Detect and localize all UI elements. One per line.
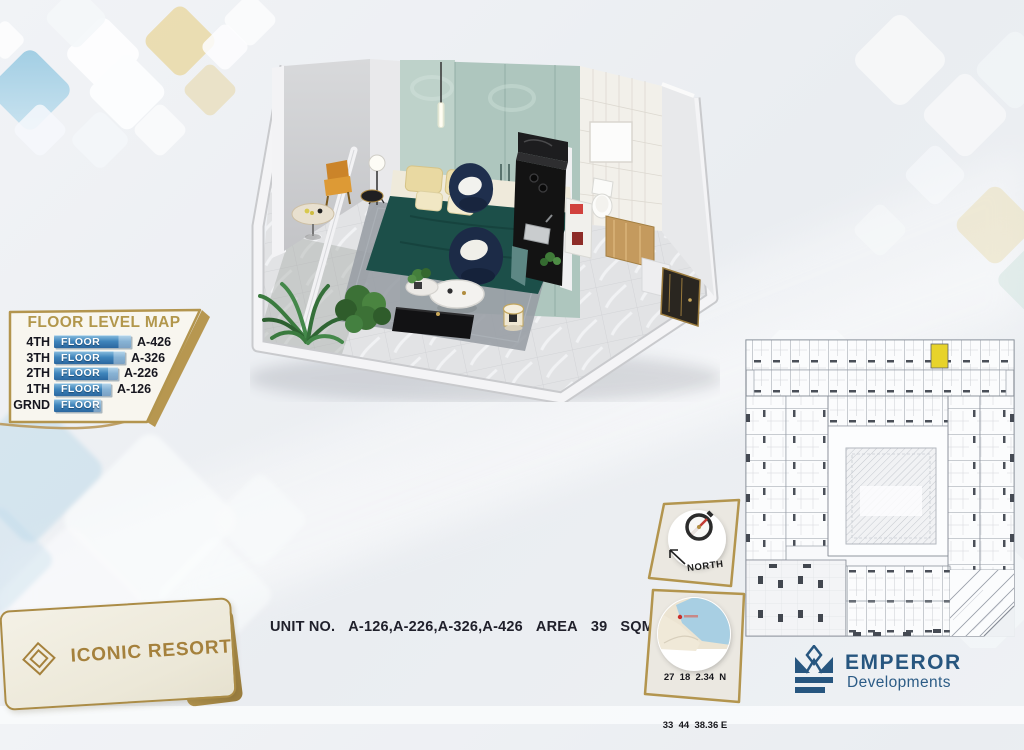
unit-label: UNIT NO. [270,619,335,635]
coordinates-line2: 33 44 38.36 E [649,718,741,734]
left-wall-edge [272,66,286,258]
floor-row-1th: 1TH FLOOR A-126 [12,381,171,397]
floor-bar: FLOOR [54,367,118,380]
floor-bar: FLOOR [54,335,131,348]
ground-hall [746,560,846,636]
unit-info-bar: UNIT NO.A-126,A-226,A-326,A-426AREA39SQM [270,619,654,635]
developer-division: Developments [847,674,951,692]
floor-row-3th: 3TH FLOOR A-326 [12,350,171,366]
floor-level-map-panel: FLOOR LEVEL MAP 4TH FLOOR A-426 3TH FLOO… [4,300,219,430]
floor-plan-drawing [746,340,1024,648]
unit-numbers: A-126,A-226,A-326,A-426 [348,619,523,635]
coordinates: 27 18 2.34 N 33 44 38.36 E [649,638,741,750]
floor-level-rows: 4TH FLOOR A-426 3TH FLOOR A-326 2TH FLOO… [12,334,171,413]
resort-brand-panel: ICONIC RESORT [0,597,237,711]
floor-bar: FLOOR [54,383,111,396]
toilet [592,178,613,218]
resort-name: ICONIC RESORT [70,636,232,668]
map-pin-icon [678,615,682,619]
crown-e-icon [790,645,840,697]
apartment-3d-render [250,46,720,402]
highlighted-unit [931,344,948,368]
floor-row-4th: 4TH FLOOR A-426 [12,334,171,350]
bathroom-window [590,122,632,162]
area-label: AREA [536,619,578,635]
kitchen-counter [511,132,568,286]
area-value: 39 [591,619,608,635]
developer-name: EMPEROR [845,651,962,675]
floor-row-grnd: GRND FLOOR [12,397,171,413]
pool [846,448,936,544]
floor-bar: FLOOR [54,351,125,364]
floor-level-map-title: FLOOR LEVEL MAP [20,314,188,332]
nested-diamond-icon [19,634,59,684]
coordinates-line1: 27 18 2.34 N [649,670,741,686]
floor-row-2th: 2TH FLOOR A-226 [12,366,171,382]
fridge [565,198,592,258]
bottom-strip [0,706,1024,724]
floor-bar: FLOOR [54,399,101,412]
decor-tiles-top-left [0,0,278,171]
floor-lamp-gold [504,304,524,331]
building-floor-plan [733,330,1024,648]
